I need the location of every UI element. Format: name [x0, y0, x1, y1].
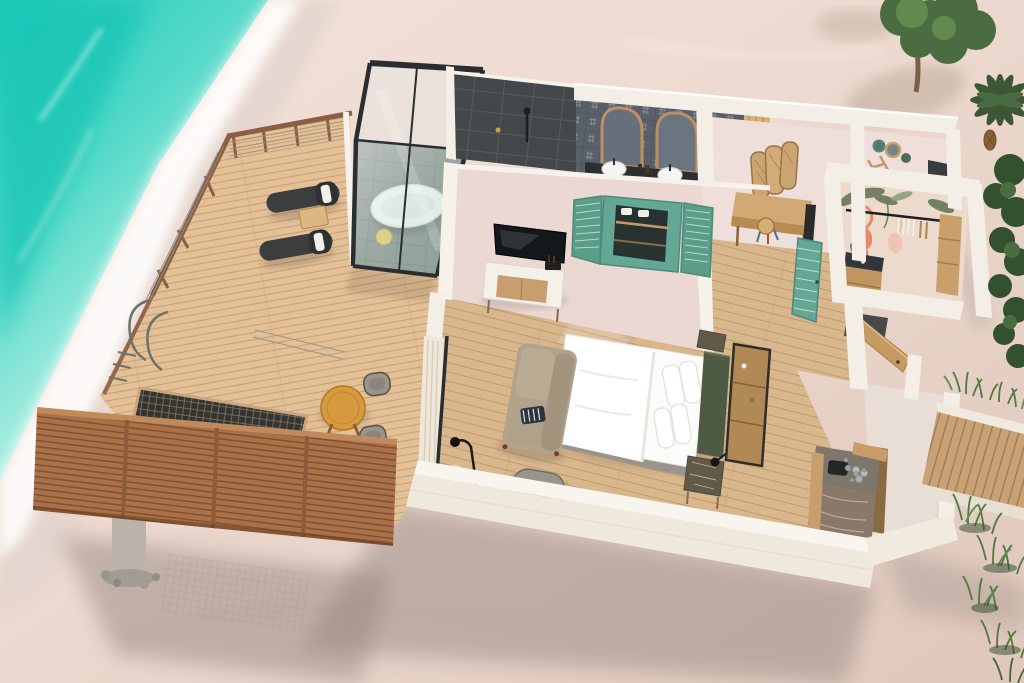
wardrobe-side-shelf [936, 214, 962, 296]
amenity-bottle [496, 128, 501, 133]
wood-hanger [926, 222, 927, 239]
leg [687, 492, 688, 504]
floorplan-render [0, 0, 1024, 683]
lamp-head [450, 437, 460, 447]
door-handle [896, 360, 900, 364]
arched-mirror [602, 108, 642, 168]
leg [557, 309, 558, 322]
pillar [112, 512, 146, 576]
teal-louver-door [792, 238, 822, 322]
shelf-item [750, 398, 755, 403]
amenity-set [645, 165, 649, 173]
wardrobe-shelf [726, 344, 770, 466]
towel-roll [638, 210, 649, 217]
wood-hanger [920, 221, 921, 238]
basket-set [874, 141, 885, 152]
desk-leg [737, 226, 738, 246]
bistro-table [321, 386, 365, 430]
basket-set [886, 143, 900, 157]
deck-side-table [299, 206, 329, 229]
arched-mirror [657, 113, 697, 173]
leg [717, 497, 718, 509]
door-knob [815, 280, 819, 284]
towel-roll [621, 208, 632, 215]
wc-east-wall [946, 128, 962, 210]
shower-head-icon [524, 108, 531, 115]
leg [488, 300, 489, 313]
striped-cushion [520, 405, 546, 424]
shower-tiles [452, 74, 576, 172]
basket-set [901, 153, 911, 163]
corridor-east-wall [850, 112, 866, 262]
jamb [696, 96, 714, 186]
shelf-item [742, 364, 747, 369]
amenity-set [638, 164, 642, 172]
bistro-chair [363, 371, 392, 396]
